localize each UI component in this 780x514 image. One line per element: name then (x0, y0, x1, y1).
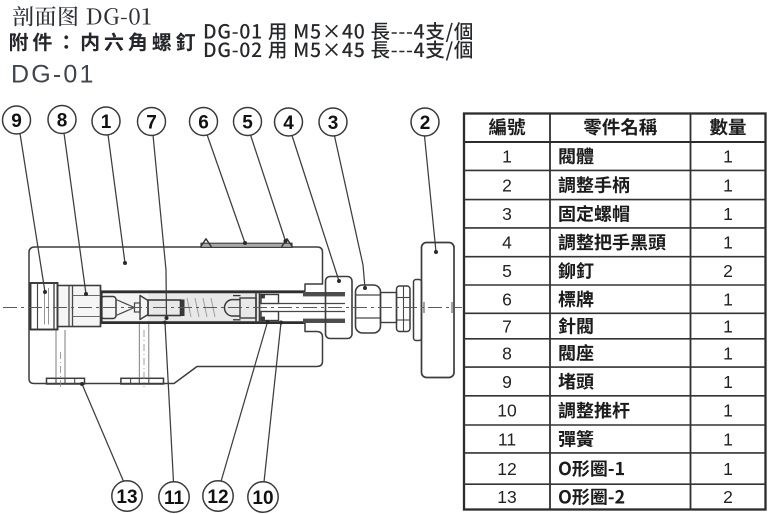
svg-text:DG-01: DG-01 (11, 61, 96, 89)
svg-text:12: 12 (497, 459, 516, 479)
svg-text:1: 1 (723, 429, 733, 449)
svg-text:13: 13 (497, 487, 516, 507)
svg-text:6: 6 (502, 289, 512, 309)
svg-text:10: 10 (497, 401, 517, 421)
svg-text:1: 1 (723, 316, 733, 336)
svg-text:8: 8 (502, 343, 512, 363)
svg-text:1: 1 (723, 147, 733, 167)
svg-text:5: 5 (242, 112, 253, 133)
svg-text:1: 1 (101, 112, 112, 133)
svg-text:10: 10 (252, 488, 273, 509)
svg-text:11: 11 (164, 488, 185, 509)
svg-text:7: 7 (502, 316, 512, 336)
svg-text:2: 2 (723, 261, 733, 281)
svg-text:1: 1 (723, 343, 733, 363)
svg-text:1: 1 (723, 175, 733, 195)
svg-text:9: 9 (11, 111, 22, 132)
svg-text:1: 1 (723, 459, 733, 479)
svg-text:3: 3 (502, 204, 512, 224)
svg-text:2: 2 (502, 175, 512, 195)
svg-text:8: 8 (57, 110, 68, 131)
svg-text:1: 1 (502, 147, 512, 167)
svg-text:7: 7 (146, 112, 157, 133)
svg-text:1: 1 (723, 204, 733, 224)
svg-text:13: 13 (116, 487, 137, 508)
svg-text:3: 3 (328, 113, 339, 134)
svg-text:4: 4 (283, 113, 294, 134)
svg-text:12: 12 (207, 487, 228, 508)
svg-text:1: 1 (723, 372, 733, 392)
svg-text:9: 9 (502, 372, 512, 392)
svg-text:1: 1 (723, 401, 733, 421)
svg-text:4: 4 (502, 233, 512, 253)
svg-text:11: 11 (498, 429, 516, 449)
svg-text:6: 6 (198, 112, 209, 133)
svg-text:2: 2 (723, 487, 733, 507)
svg-text:1: 1 (723, 289, 733, 309)
svg-text:1: 1 (723, 233, 733, 253)
svg-text:5: 5 (502, 261, 512, 281)
svg-text:2: 2 (420, 113, 431, 134)
